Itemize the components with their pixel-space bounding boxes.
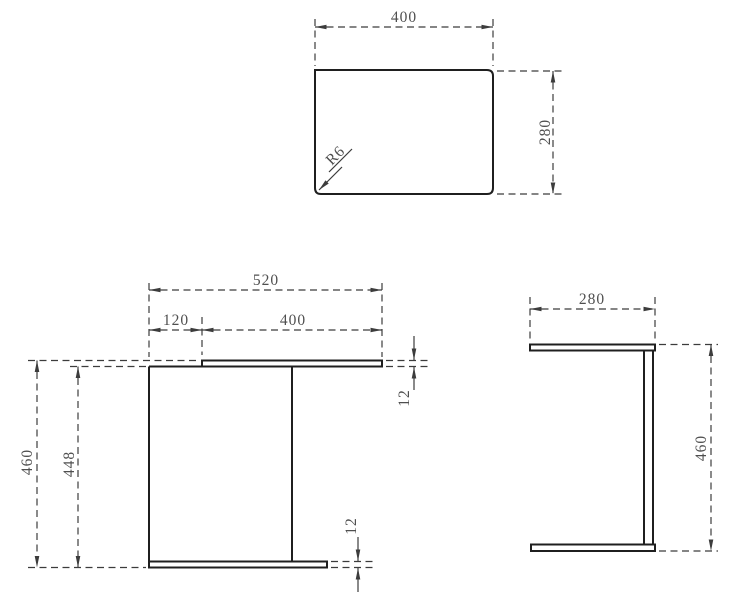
- side-view: 280 460: [530, 291, 718, 551]
- dim-front-overall-height-group: 460: [19, 361, 200, 568]
- dim-top-depth-group: 280: [497, 71, 562, 194]
- front-top-panel: [202, 361, 382, 367]
- front-top-thickness-label: 12: [396, 389, 413, 407]
- dim-front-top-thickness-group: 12: [386, 336, 432, 407]
- top-width-label: 400: [391, 9, 417, 26]
- dim-front-inner-height-group: 448: [61, 367, 146, 568]
- side-height-label: 460: [693, 435, 710, 461]
- front-view: 520 120 400 460 448: [19, 272, 432, 592]
- front-inner-height-label: 448: [61, 451, 78, 477]
- dim-front-offset-group: 120: [149, 312, 202, 355]
- top-depth-label: 280: [537, 119, 554, 145]
- dim-top-width-group: 400: [315, 9, 493, 66]
- front-overall-width-label: 520: [253, 272, 279, 289]
- side-bottom-panel: [531, 545, 655, 552]
- dim-side-height-group: 460: [659, 345, 718, 552]
- front-panel-width-label: 400: [280, 312, 306, 329]
- corner-radius-callout: R6: [319, 143, 352, 190]
- top-view: 400 280 R6: [315, 9, 562, 194]
- side-depth-label: 280: [579, 291, 605, 308]
- drawing-page: 400 280 R6 520: [0, 0, 734, 600]
- side-top-panel: [530, 345, 655, 351]
- front-overall-height-label: 460: [19, 449, 36, 475]
- dim-side-depth-group: 280: [530, 291, 655, 341]
- front-offset-label: 120: [163, 312, 189, 329]
- front-bottom-thickness-label: 12: [343, 517, 360, 535]
- top-panel-outline: [315, 70, 493, 194]
- front-bottom-panel: [149, 562, 327, 568]
- dim-front-panel-width-group: 400: [202, 312, 382, 330]
- technical-drawing-canvas: 400 280 R6 520: [0, 0, 734, 600]
- side-back-panel: [644, 351, 653, 545]
- corner-radius-label: R6: [323, 143, 349, 169]
- dim-front-bottom-thickness-group: 12: [331, 517, 375, 592]
